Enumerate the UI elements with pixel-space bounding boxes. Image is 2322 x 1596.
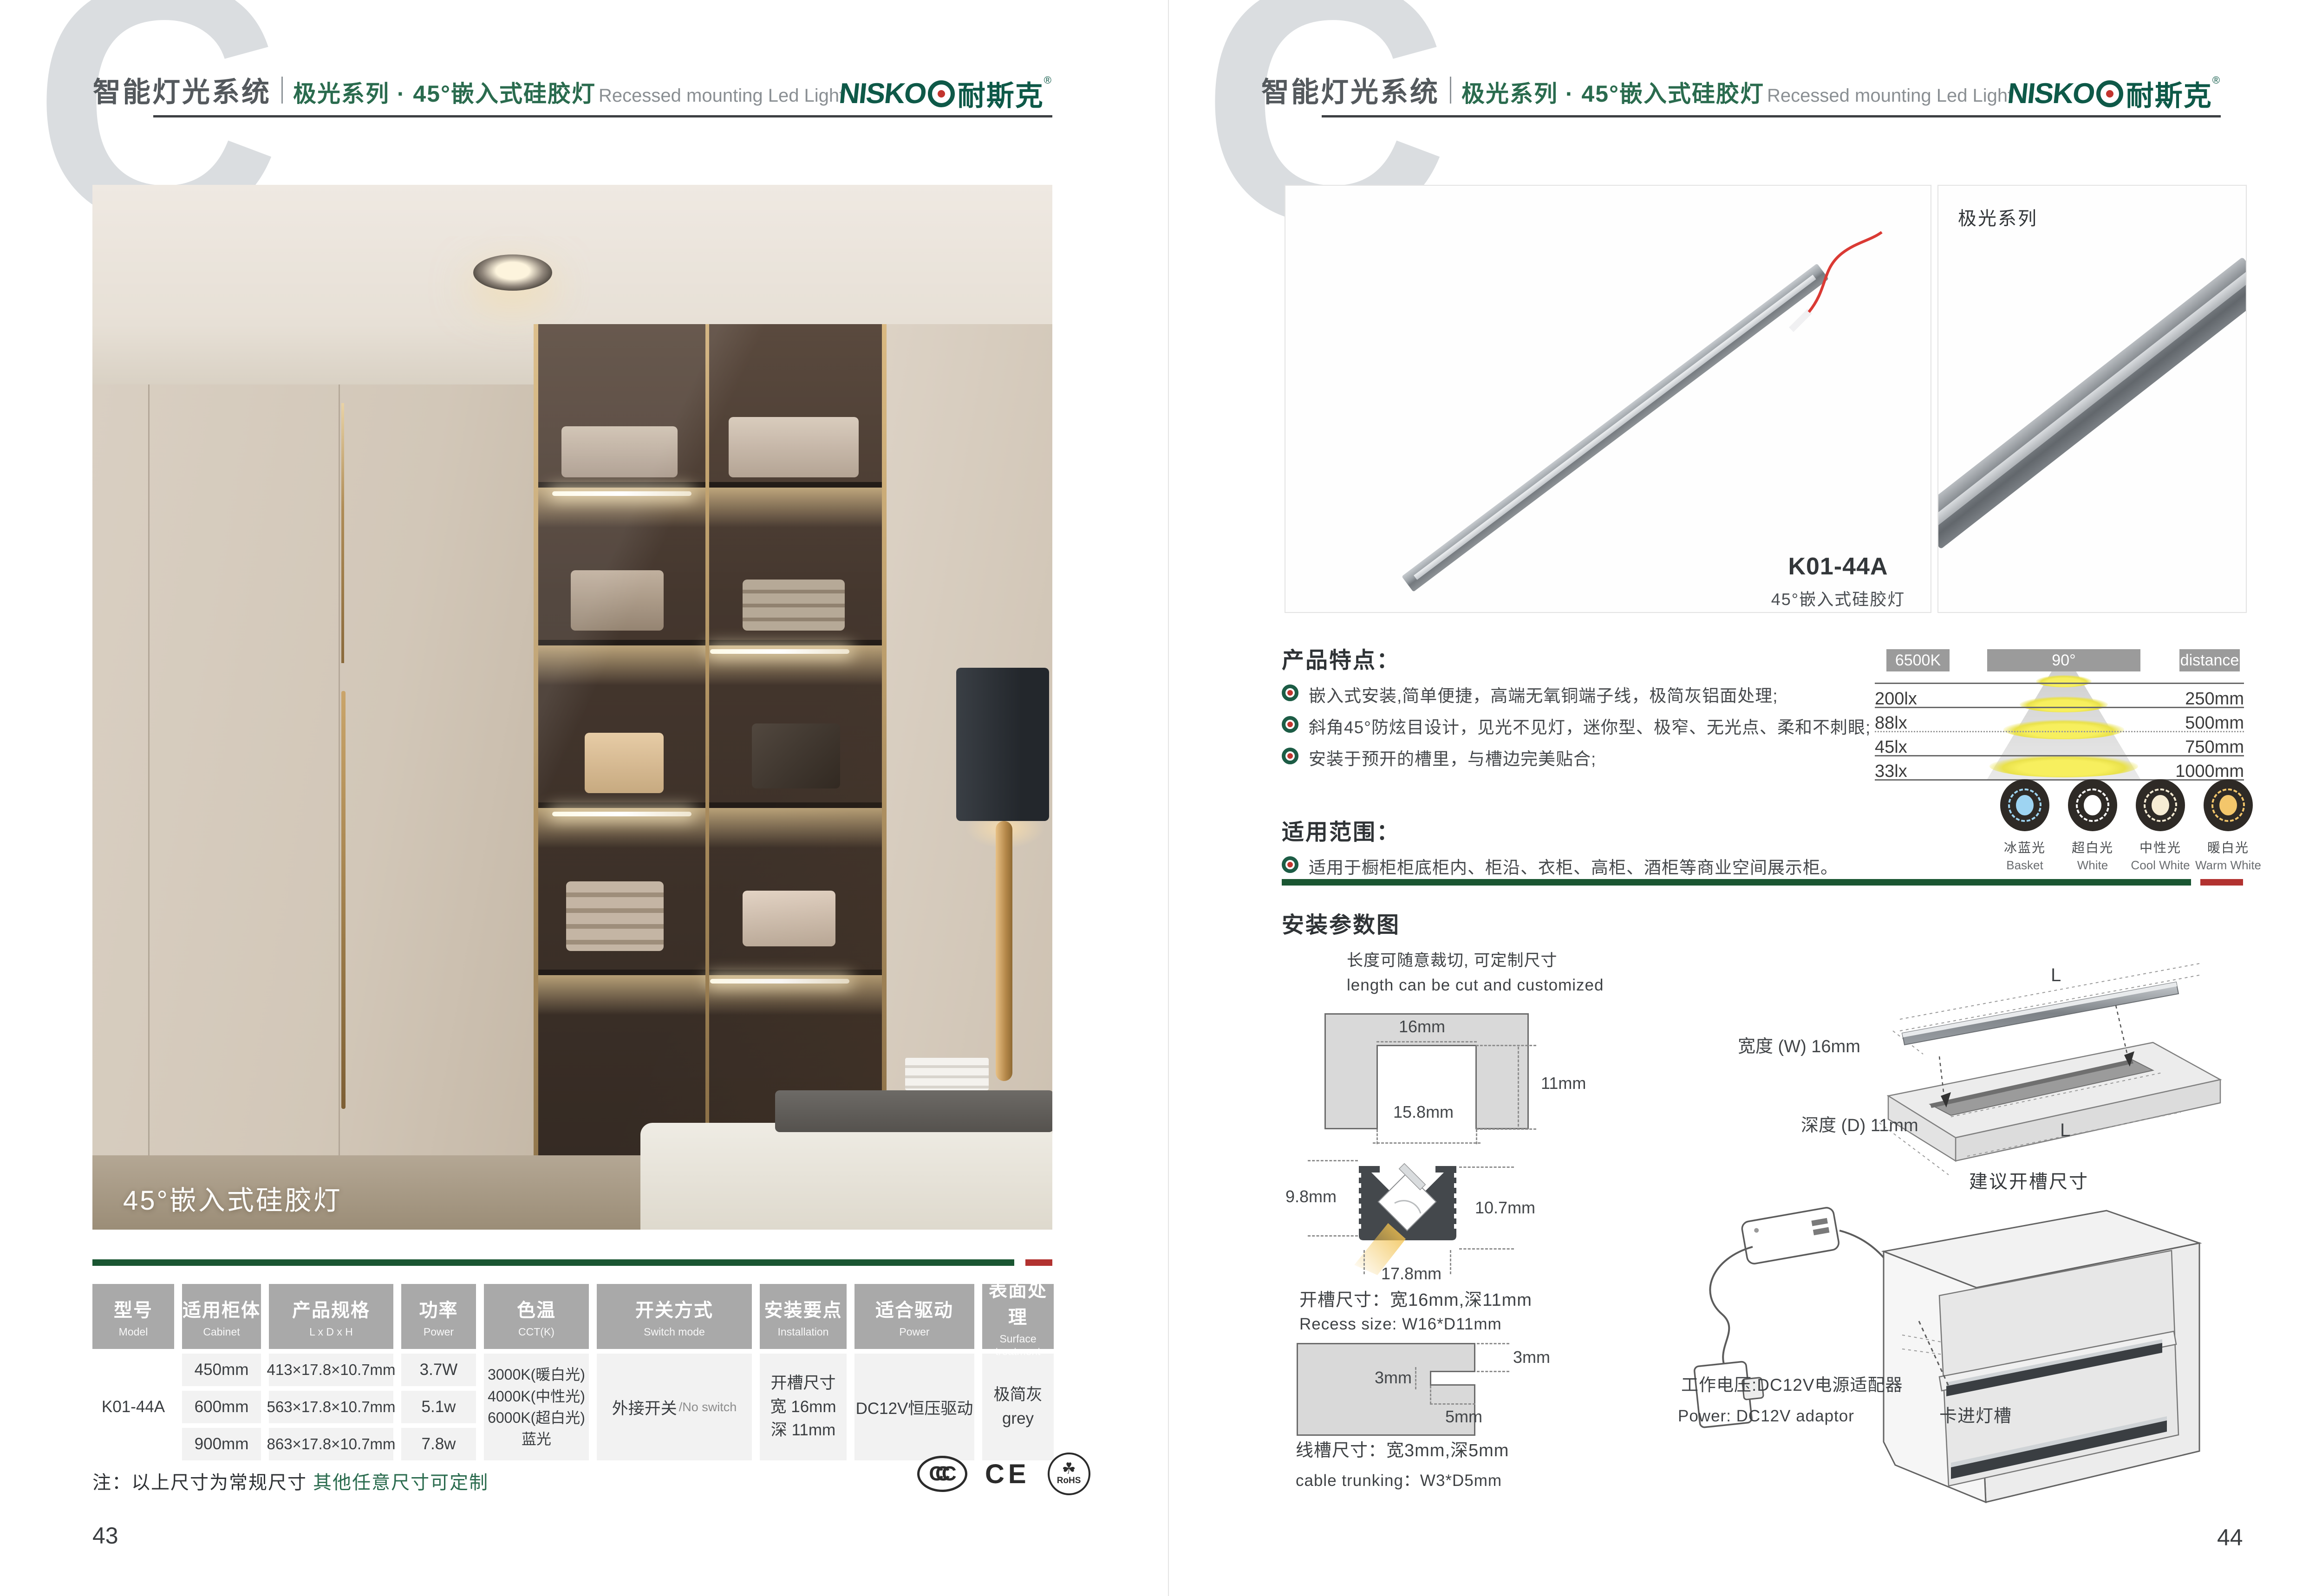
bullet-icon [1282,716,1298,733]
dim-11mm: 11mm [1541,1074,1586,1093]
feature-item: 安装于预开的槽里，与槽边完美贴合; [1282,745,1895,770]
cct-ice-blue: 冰蓝光Basket [1999,779,2051,873]
ce-mark-icon: CE [985,1459,1030,1490]
distance-label: 750mm [2185,737,2244,757]
brand-logo: NISKO 耐斯克 ® [839,73,1051,114]
dim-3mm-side: 3mm [1375,1368,1412,1388]
logo-latin: NISKO [2006,77,2096,110]
dim-15.8mm: 15.8mm [1393,1102,1454,1122]
light-pool [2020,697,2108,712]
page-header: 智能灯光系统 极光系列 · 45°嵌入式硅胶灯 Recessed mountin… [93,70,844,110]
beam-angle-box: 90° [1987,649,2140,671]
photo-wardrobe-doors [92,384,534,1230]
distance-box: distance [2179,649,2240,671]
page-44: C 智能灯光系统 极光系列 · 45°嵌入式硅胶灯 Recessed mount… [1168,0,2322,1596]
logo-dot-icon [2096,80,2123,107]
cell-switch: 外接开关/No switch [597,1354,752,1460]
page-43: C 智能灯光系统 极光系列 · 45°嵌入式硅胶灯 Recessed mount… [0,0,1168,1596]
board-width-label: 宽度 (W) 16mm [1738,1032,1860,1057]
divider-green-bar [92,1259,1014,1266]
lifestyle-photo: 45°嵌入式硅胶灯 [92,185,1052,1230]
series-title: 极光系列 · 45°嵌入式硅胶灯 [293,75,596,109]
sun-icon [2136,779,2185,831]
photo-caption: 45°嵌入式硅胶灯 [123,1179,342,1218]
dim-L-groove: L [2060,1120,2070,1141]
clip-into-groove-label: 卡进灯槽 [1939,1401,2012,1427]
page-number-44: 44 [2217,1524,2243,1551]
cabinet-diagram [1642,1182,2227,1516]
install-section-title: 安装参数图 [1282,906,1400,939]
profile-diagram [1352,1154,1463,1280]
bullet-icon [1282,684,1298,701]
page-number-43: 43 [92,1522,118,1549]
col-header-switch: 开关方式Switch mode [597,1284,752,1349]
divider-red-bar [1025,1259,1052,1266]
distance-label: 500mm [2185,713,2244,733]
led-bar-product [1402,263,1829,592]
page-gutter [1168,0,1169,1596]
board-diagram: L L [1874,957,2246,1198]
dim-3mm-top: 3mm [1513,1348,1550,1367]
col-header-cct: 色温CCT(K) [484,1284,589,1349]
profile-detail-panel: 极光系列 [1937,185,2247,613]
distance-label: 1000mm [2175,762,2244,782]
photo-gold-handle [341,403,344,663]
cell-power: 3.7W [401,1354,476,1386]
trunking-size-en: cable trunking：W3*D5mm [1296,1467,1502,1491]
lux-label: 200lx [1875,689,1917,709]
cell-spec: 413×17.8×10.7mm [269,1354,393,1386]
features-title: 产品特点： [1282,642,1400,674]
lux-label: 45lx [1875,737,1907,757]
header-separator [281,77,283,104]
product-photo-panel: K01-44A 45°嵌入式硅胶灯 [1285,185,1931,613]
distance-label: 250mm [2185,689,2244,709]
dim-5mm: 5mm [1445,1407,1482,1427]
series-title: 极光系列 · 45°嵌入式硅胶灯 [1461,75,1764,109]
photo-floor-lamp [956,668,1049,821]
trunking-slot [1430,1371,1475,1386]
photo-downlight [473,254,552,291]
dim-16mm: 16mm [1399,1017,1445,1036]
cct-cool-white: 中性光Cool White [2134,779,2186,873]
product-name: 45°嵌入式硅胶灯 [1755,586,1922,610]
bullet-icon [1282,856,1298,873]
light-pool [1989,755,2138,777]
header-rule [1322,115,2221,117]
header-rule [153,115,1052,117]
col-header-install: 安装要点Installation [760,1284,847,1349]
lux-label: 33lx [1875,762,1907,782]
cell-cabinet: 600mm [182,1391,261,1423]
trunking-diagram: 3mm 3mm 5mm [1297,1337,1585,1442]
col-header-surface: 表面处理Surface treatment [982,1284,1054,1349]
photo-books [905,1058,989,1090]
cell-install: 开槽尺寸 宽 16mm 深 11mm [760,1354,847,1460]
recess-size-zh: 开槽尺寸：宽16mm,深11mm [1299,1285,1532,1311]
series-subtitle-en: Recessed mounting Led Light [599,85,844,106]
sun-icon [2000,779,2049,831]
photo-bed-corner [640,1123,1052,1230]
dim-17.8mm: 17.8mm [1381,1264,1441,1283]
photo-gold-handle [341,691,346,1109]
light-distribution-chart: 6500K 90° distance 200lx 250mm 88lx 500m… [1875,649,2244,782]
logo-registered-mark: ® [2212,74,2220,86]
feature-item: 嵌入式安装,简单便捷，高端无氧铜端子线，极简灰铝面处理; [1282,682,1895,707]
scope-title: 适用范围： [1282,814,1400,846]
col-header-spec: 产品规格L x D x H [269,1284,393,1349]
dim-10.7mm: 10.7mm [1475,1198,1535,1218]
cell-driver: DC12V恒压驱动 [854,1354,974,1460]
light-pool [2036,675,2092,687]
feature-item: 斜角45°防炫目设计，见光不见灯，迷你型、极窄、无光点、柔和不刺眼; [1282,713,1895,738]
cell-power: 5.1w [401,1391,476,1423]
board-groove-drawing [1874,957,2246,1198]
light-pool [2003,720,2124,739]
cct-warm-white: 暖白光Warm White [2202,779,2254,873]
product-label: K01-44A 45°嵌入式硅胶灯 [1755,553,1922,610]
recess-size-en: Recess size: W16*D11mm [1299,1315,1502,1334]
divider-red-bar [2200,879,2243,886]
logo-chinese: 耐斯克 [958,73,1044,114]
cell-cabinet: 900mm [182,1428,261,1460]
col-header-cabinet: 适用柜体Cabinet [182,1284,261,1349]
kelvin-box: 6500K [1886,649,1950,671]
logo-latin: NISKO [838,77,928,110]
col-header-driver: 适合驱动Power [854,1284,974,1349]
recess-diagram: 16mm 11mm 15.8mm [1324,1004,1622,1148]
cell-surface: 极简灰 grey [982,1354,1054,1460]
col-header-power: 功率Power [401,1284,476,1349]
brand-logo: NISKO 耐斯克 ® [2008,73,2220,114]
header-separator [1450,77,1451,104]
cabinet-power-en: Power: DC12V adaptor [1678,1407,1854,1426]
sun-icon [2068,779,2117,831]
cell-model: K01-44A [92,1354,174,1460]
series-tag: 极光系列 [1958,203,2038,230]
red-wire [1777,228,1898,339]
cct-legend: 冰蓝光Basket 超白光White 中性光Cool White 暖白光Warm… [1999,779,2254,873]
aluminum-profile-closeup [1937,257,2247,549]
dim-L-top: L [2051,965,2061,986]
catalog-spread: C 智能灯光系统 极光系列 · 45°嵌入式硅胶灯 Recessed mount… [0,0,2322,1596]
brand-title: 智能灯光系统 [1261,70,1440,110]
col-header-model: 型号Model [92,1284,174,1349]
size-note: 注：以上尺寸为常规尺寸 其他任意尺寸可定制 [92,1467,489,1494]
brand-title: 智能灯光系统 [93,70,271,110]
rohs-mark-icon: ☘RoHS [1048,1453,1090,1495]
series-subtitle-en: Recessed mounting Led Light [1767,85,2013,106]
trunking-size-zh: 线槽尺寸：宽3mm,深5mm [1296,1436,1509,1461]
logo-dot-icon [928,80,955,107]
cell-cct: 3000K(暖白光) 4000K(中性光) 6000K(超白光) 蓝光 [484,1354,589,1460]
profile-cross-section [1352,1154,1463,1280]
cell-spec: 563×17.8×10.7mm [269,1391,393,1423]
ccc-mark-icon: CCC [917,1456,967,1492]
logo-registered-mark: ® [1044,74,1051,86]
cell-power: 7.8w [401,1428,476,1460]
dim-9.8mm: 9.8mm [1285,1187,1337,1206]
spec-table-header-row: 型号Model 适用柜体Cabinet 产品规格L x D x H 功率Powe… [92,1284,1054,1349]
product-model: K01-44A [1755,553,1922,580]
cut-note-zh: 长度可随意裁切, 可定制尺寸 [1347,947,1557,971]
cabinet-wiring-drawing [1642,1182,2227,1516]
sun-icon [2204,779,2253,831]
photo-bench [775,1090,1052,1132]
cut-note-en: length can be cut and customized [1347,976,1604,995]
certification-icons: CCC CE ☘RoHS [917,1453,1090,1495]
lux-label: 88lx [1875,713,1907,733]
cct-white: 超白光White [2067,779,2119,873]
spec-table: 型号Model 适用柜体Cabinet 产品规格L x D x H 功率Powe… [92,1284,1054,1460]
bullet-icon [1282,748,1298,764]
logo-chinese: 耐斯克 [2126,73,2212,114]
board-depth-label: 深度 (D) 11mm [1801,1111,1918,1136]
cell-cabinet: 450mm [182,1354,261,1386]
divider-green-bar [1282,879,2191,886]
cell-spec: 863×17.8×10.7mm [269,1428,393,1460]
cabinet-power-zh: 工作电压:DC12V电源适配器 [1681,1371,1903,1396]
scope-item: 适用于橱柜柜底柜内、柜沿、衣柜、高柜、酒柜等商业空间展示柜。 [1282,853,1932,879]
spec-table-body: K01-44A 450mm 600mm 900mm 413×17.8×10.7m… [92,1354,1054,1460]
page-header: 智能灯光系统 极光系列 · 45°嵌入式硅胶灯 Recessed mountin… [1261,70,2013,110]
